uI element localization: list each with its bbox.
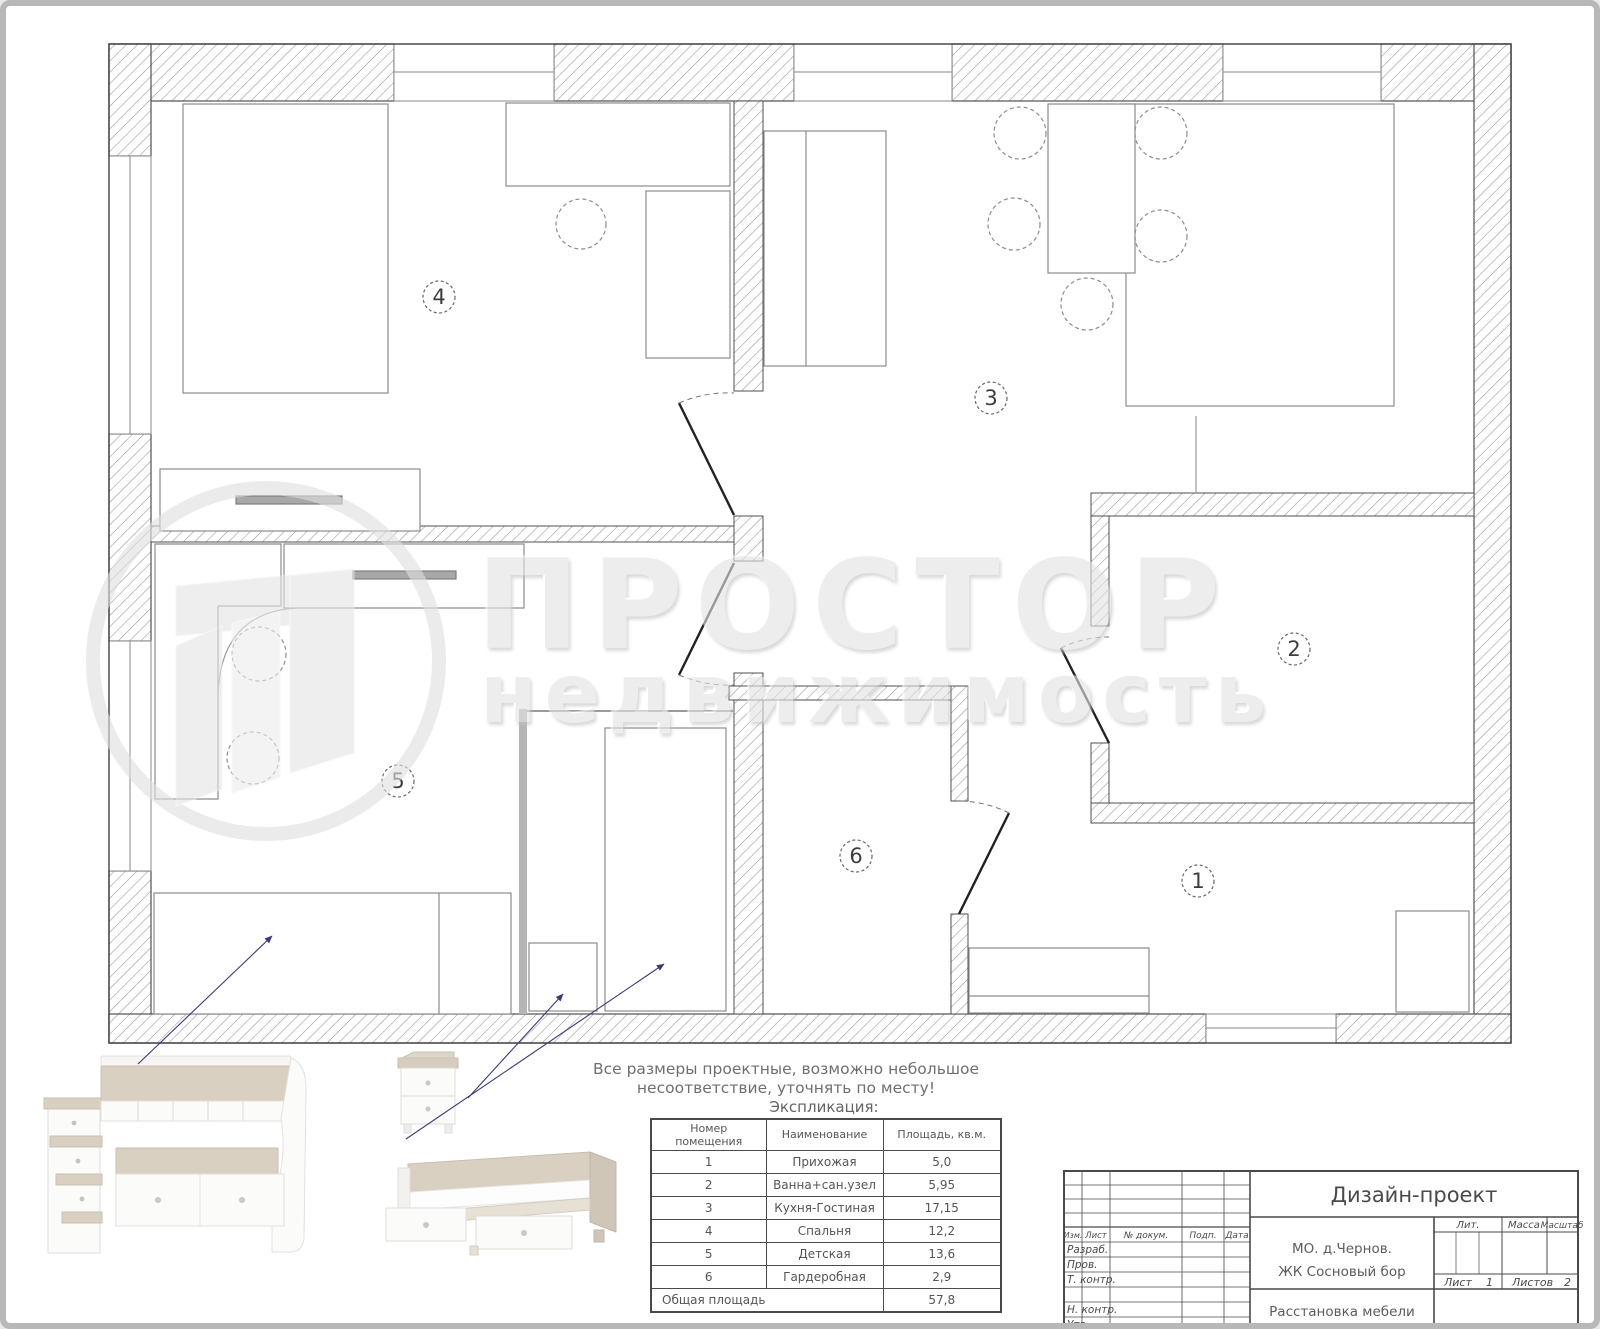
window — [109, 641, 151, 871]
bench — [969, 948, 1149, 1013]
legend-row: 2 Ванна+сан.узел 5,95 — [651, 1174, 1001, 1197]
title-block: Дизайн-проект МО. д.Чернов. ЖК Сосновый … — [1064, 1171, 1584, 1323]
room-number: 4 — [432, 285, 445, 309]
legend-total-value: 57,8 — [883, 1289, 1001, 1313]
stamp-listov-value: 2 — [1564, 1276, 1571, 1289]
desk — [506, 103, 730, 186]
cell-area: 5,95 — [883, 1174, 1001, 1197]
cell-name: Спальня — [766, 1220, 883, 1243]
object-line2: ЖК Сосновый бор — [1278, 1264, 1405, 1280]
room-3-furniture — [764, 104, 1394, 493]
wall-segment — [952, 44, 1223, 101]
legend-row: 4 Спальня 12,2 — [651, 1220, 1001, 1243]
cell-area: 12,2 — [883, 1220, 1001, 1243]
wall-segment — [109, 434, 151, 641]
legend-col-number-l1: Номер — [690, 1122, 727, 1135]
col-list: Лист — [1084, 1231, 1108, 1241]
col-podp: Подп. — [1189, 1231, 1216, 1241]
stamp-listov-label: Листов — [1511, 1276, 1553, 1289]
room-number: 6 — [849, 844, 862, 868]
desk-corner — [155, 544, 281, 799]
furniture-photo-bunk-bed — [44, 1056, 306, 1253]
stamp-masshtab: Масштаб — [1541, 1221, 1584, 1231]
stamp-lit: Лит. — [1455, 1220, 1479, 1231]
wall-segment — [734, 101, 763, 391]
project-note: Все размеры проектные, возможно небольшо… — [561, 1060, 1011, 1098]
cell-name: Прихожая — [766, 1151, 883, 1174]
wall-segment — [554, 44, 794, 101]
window — [1206, 1014, 1336, 1043]
desk-curve — [218, 608, 298, 696]
row-nkontr: Н. контр. — [1067, 1304, 1117, 1316]
room-label-6: 6 — [840, 840, 872, 872]
legend-table: Номер помещения Наименование Площадь, кв… — [650, 1118, 1002, 1313]
room-number: 2 — [1287, 637, 1300, 661]
room-1-furniture — [969, 911, 1469, 1013]
window — [1223, 44, 1381, 101]
tv-panel — [236, 496, 342, 504]
wall-segment — [1091, 516, 1109, 626]
wall-segment — [729, 686, 968, 700]
legend-col-area: Площадь, кв.м. — [883, 1119, 1001, 1151]
cell-number: 5 — [651, 1243, 766, 1266]
chair — [232, 627, 286, 681]
wall-segment — [1091, 743, 1109, 803]
window — [109, 156, 151, 434]
wall-segment — [1336, 1014, 1511, 1043]
wall-segment — [1474, 44, 1511, 1043]
furniture-photo-nightstand — [398, 1052, 458, 1133]
legend-col-number: Номер помещения — [651, 1119, 766, 1151]
sheet-title: Расстановка мебели — [1269, 1304, 1415, 1320]
partition-gray — [519, 709, 527, 1014]
door-bathroom — [1061, 637, 1109, 743]
room-label-3: 3 — [975, 382, 1007, 414]
wall-segment — [109, 44, 394, 101]
room-5-furniture — [154, 544, 524, 1014]
col-izm: Изм. — [1064, 1231, 1083, 1240]
door-wardrobe-room — [959, 801, 1009, 914]
wall-segment — [734, 516, 763, 561]
row-utv: Утв. — [1067, 1319, 1089, 1323]
wall-segment — [1091, 803, 1474, 823]
cell-number: 6 — [651, 1266, 766, 1289]
cell-area: 2,9 — [883, 1266, 1001, 1289]
chair — [994, 107, 1046, 159]
cell-name: Гардеробная — [766, 1266, 883, 1289]
chair — [988, 198, 1040, 250]
stamp-list-value: 1 — [1486, 1276, 1493, 1289]
cell-area: 13,6 — [883, 1243, 1001, 1266]
cell-number: 3 — [651, 1197, 766, 1220]
doc-title: Дизайн-проект — [1331, 1183, 1498, 1207]
legend-header-row: Номер помещения Наименование Площадь, кв… — [651, 1119, 1001, 1151]
wall-segment — [109, 44, 151, 156]
stamp-list-label: Лист — [1443, 1276, 1472, 1289]
dining-table — [1048, 104, 1135, 273]
chair — [227, 732, 279, 784]
legend-col-name: Наименование — [766, 1119, 883, 1151]
room-label-4: 4 — [423, 281, 455, 313]
col-dokum: № докум. — [1123, 1231, 1168, 1241]
bed-kids — [154, 893, 511, 1014]
legend-total-row: Общая площадь 57,8 — [651, 1289, 1001, 1313]
wardrobe-tall — [605, 728, 726, 1011]
hall-cabinet — [1396, 911, 1469, 1012]
cell-name: Детская — [766, 1243, 883, 1266]
tv-panel — [353, 571, 456, 579]
legend-row: 5 Детская 13,6 — [651, 1243, 1001, 1266]
object-line1: МО. д.Чернов. — [1292, 1241, 1392, 1257]
cell-area: 5,0 — [883, 1151, 1001, 1174]
note-line: несоответствие, уточнять по месту! — [561, 1079, 1011, 1098]
wall-segment — [734, 700, 763, 1014]
room-4-furniture — [160, 103, 730, 531]
legend-title: Экспликация: — [646, 1098, 1002, 1116]
design-project-sheet: 4 3 2 5 6 1 — [0, 0, 1600, 1329]
legend-col-number-l2: помещения — [675, 1135, 742, 1148]
row-tkontr: Т. контр. — [1067, 1274, 1116, 1286]
room-label-5: 5 — [382, 765, 414, 797]
row-prov: Пров. — [1067, 1259, 1098, 1271]
legend-row: 6 Гардеробная 2,9 — [651, 1266, 1001, 1289]
furniture-photo-bed-drawers — [386, 1152, 616, 1255]
rug-sofa-area — [1126, 104, 1394, 406]
cell-number: 2 — [651, 1174, 766, 1197]
door-bedroom — [679, 393, 734, 515]
chair — [556, 199, 606, 249]
chair — [1061, 278, 1113, 330]
bed-double — [183, 104, 388, 393]
room-number: 5 — [391, 769, 404, 793]
cell-name: Ванна+сан.узел — [766, 1174, 883, 1197]
wall-segment — [1091, 493, 1474, 516]
window — [394, 44, 554, 101]
room-label-2: 2 — [1278, 633, 1310, 665]
kitchen-unit — [764, 131, 886, 366]
legend-row: 1 Прихожая 5,0 — [651, 1151, 1001, 1174]
legend-row: 3 Кухня-Гостиная 17,15 — [651, 1197, 1001, 1220]
window — [794, 44, 952, 101]
room-label-1: 1 — [1182, 865, 1214, 897]
cell-number: 1 — [651, 1151, 766, 1174]
wall-segment — [951, 686, 968, 801]
wall-segment — [109, 1014, 1206, 1043]
cell-name: Кухня-Гостиная — [766, 1197, 883, 1220]
stamp-massa: Масса — [1508, 1220, 1540, 1231]
note-line: Все размеры проектные, возможно небольшо… — [561, 1060, 1011, 1079]
legend-total-label: Общая площадь — [651, 1289, 883, 1313]
cell-number: 4 — [651, 1220, 766, 1243]
closet-zone — [519, 709, 734, 1014]
cell-area: 17,15 — [883, 1197, 1001, 1220]
cabinet-small — [529, 943, 597, 1011]
row-razrab: Разраб. — [1067, 1244, 1108, 1256]
wardrobe — [646, 191, 730, 358]
col-data: Дата — [1224, 1231, 1248, 1241]
door-corridor — [679, 563, 734, 685]
wall-segment — [951, 914, 968, 1014]
room-number: 3 — [984, 386, 997, 410]
room-number: 1 — [1191, 869, 1204, 893]
